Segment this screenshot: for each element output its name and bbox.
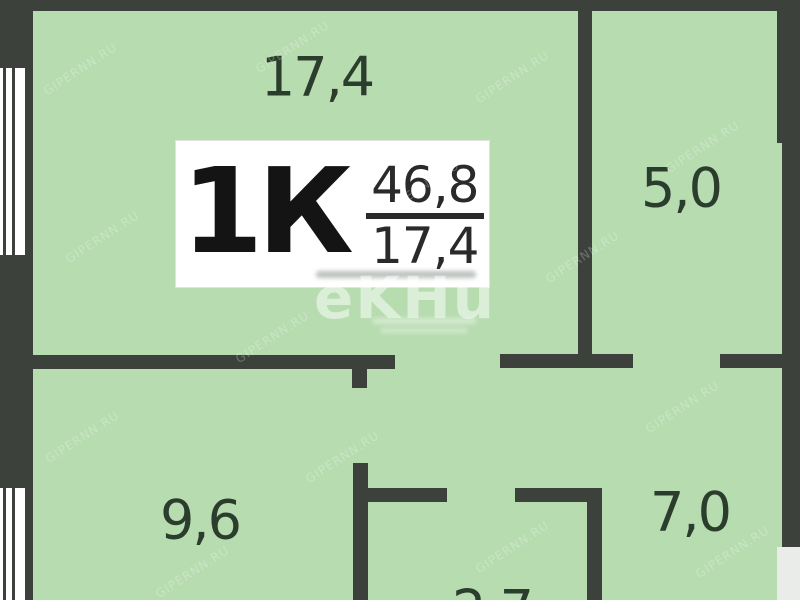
window-left-top [0, 68, 33, 255]
floorplan-canvas: 17,4 5,0 9,6 7,0 2,7 1К 46,8 17,4 GIPERN… [0, 0, 800, 600]
room-area-label-top-left: 17,4 [261, 46, 373, 109]
watermark-text: GIPERNN.RU [643, 378, 722, 436]
watermark-text: GIPERNN.RU [473, 48, 552, 106]
wall-door-jamb-kitchen [352, 369, 367, 388]
wall-livingroom-bottom [20, 355, 395, 369]
total-area-value: 46,8 [371, 159, 478, 211]
watermark-text: GIPERNN.RU [43, 408, 122, 466]
wall-top [0, 0, 800, 11]
watermark-smudge [316, 271, 476, 278]
wall-hall-top-right [720, 354, 785, 368]
unit-type-label: 1К [181, 152, 348, 270]
watermark-text: GIPERNN.RU [41, 40, 120, 98]
wall-right-lower [782, 143, 800, 547]
room-area-label-bottom-center: 2,7 [452, 579, 532, 600]
watermark-text: GIPERNN.RU [303, 428, 382, 486]
room-area-label-bottom-right: 7,0 [650, 481, 730, 544]
window-right-bottom [777, 547, 800, 600]
wall-right-upper [777, 0, 800, 143]
watermark-logo-subtext [372, 318, 477, 324]
room-area-label-top-right: 5,0 [641, 157, 721, 220]
wall-bathroom-top-left [368, 488, 447, 502]
wall-hall-top-left [500, 354, 633, 368]
wall-bathroom-right [587, 488, 602, 600]
area-fraction: 46,8 17,4 [366, 159, 484, 272]
watermark-text: GIPERNN.RU [63, 208, 142, 266]
wall-between-livingroom-and-storage [578, 11, 592, 354]
unit-info-box: 1К 46,8 17,4 [175, 140, 490, 288]
watermark-text: GIPERNN.RU [153, 543, 232, 600]
wall-kitchen-right [353, 463, 368, 600]
living-area-value: 17,4 [371, 220, 478, 272]
watermark-logo-subtext [380, 328, 468, 333]
window-left-bottom [0, 488, 33, 600]
room-area-label-bottom-left: 9,6 [160, 489, 240, 552]
watermark-text: GIPERNN.RU [473, 518, 552, 576]
